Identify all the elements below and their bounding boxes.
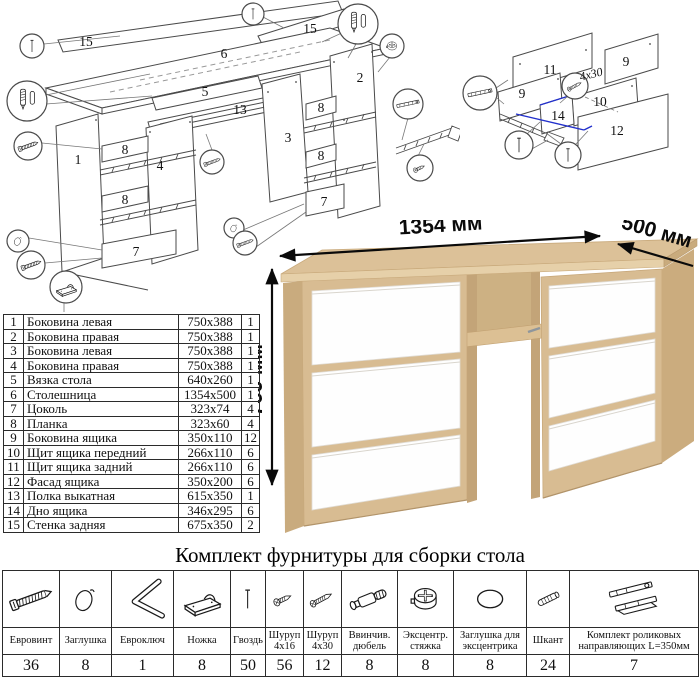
part-qty: 6 — [242, 460, 260, 475]
callout — [20, 34, 44, 58]
right-pedestal — [541, 249, 694, 498]
part-label-7: 7 — [321, 194, 328, 209]
parts-table-row: 8 Планка 323x60 4 — [4, 416, 260, 431]
callout — [555, 142, 581, 168]
drawer-assembly-diagram: 11 9 9 10 14 12 4x30 — [455, 15, 700, 210]
hardware-item-icon-cell — [342, 571, 397, 628]
hardware-item-icon-cell — [527, 571, 569, 628]
part-size: 346x295 — [179, 503, 242, 518]
hardware-item-label: Гвоздь — [231, 628, 265, 655]
part-qty: 12 — [242, 431, 260, 446]
hardware-item: Заглушка для эксцентрика 8 — [454, 571, 527, 676]
part-label-1: 1 — [75, 152, 82, 167]
part-size: 640x260 — [179, 373, 242, 388]
hardware-item-qty: 8 — [342, 655, 397, 676]
callout — [50, 271, 82, 303]
part-number: 13 — [4, 489, 24, 504]
part-size: 266x110 — [179, 445, 242, 460]
hardware-item-qty: 8 — [454, 655, 526, 676]
hardware-item-label: Ввинчив. дюбель — [342, 628, 397, 655]
part-qty: 1 — [242, 315, 260, 330]
part-name: Боковина ящика — [24, 431, 179, 446]
hardware-item-icon-cell — [454, 571, 526, 628]
part-qty: 4 — [242, 416, 260, 431]
cam-cover-icon — [457, 574, 523, 624]
hardware-item-qty: 24 — [527, 655, 569, 676]
parts-table-row: 1 Боковина левая 750x388 1 — [4, 315, 260, 330]
parts-table-row: 5 Вязка стола 640x260 1 — [4, 373, 260, 388]
hardware-item: Эксцентр. стяжка 8 — [398, 571, 454, 676]
part-qty: 1 — [242, 329, 260, 344]
callout — [200, 150, 224, 174]
hardware-item-label: Шуруп 4x16 — [266, 628, 303, 655]
hardware-item-qty: 7 — [570, 655, 698, 676]
callout — [233, 231, 257, 255]
part-label-9: 9 — [519, 86, 526, 101]
part-size: 750x388 — [179, 358, 242, 373]
hardware-item-label: Заглушка для эксцентрика — [454, 628, 526, 655]
hardware-item-icon-cell — [174, 571, 230, 628]
part-size: 323x60 — [179, 416, 242, 431]
part-name: Боковина правая — [24, 329, 179, 344]
hardware-item-icon-cell — [398, 571, 453, 628]
part-number: 14 — [4, 503, 24, 518]
hardware-item-label: Евроключ — [112, 628, 173, 655]
callout — [17, 251, 45, 279]
hardware-item-icon-cell — [60, 571, 111, 628]
parts-table-row: 11 Щит ящика задний 266x110 6 — [4, 460, 260, 475]
part-qty: 2 — [242, 518, 260, 533]
part-number: 7 — [4, 402, 24, 417]
part-label-7: 7 — [133, 244, 140, 259]
part-label-8: 8 — [122, 142, 129, 157]
hardware-item-label: Шкант — [527, 628, 569, 655]
hardware-item-label: Ножка — [174, 628, 230, 655]
wood-dowel-icon — [529, 574, 568, 624]
hardware-item: Гвоздь 50 — [231, 571, 266, 676]
part-qty: 1 — [242, 387, 260, 402]
cam-lock-icon — [400, 574, 451, 624]
part-name: Дно ящика — [24, 503, 179, 518]
part-number: 2 — [4, 329, 24, 344]
parts-table-row: 9 Боковина ящика 350x110 12 — [4, 431, 260, 446]
hardware-item: Ввинчив. дюбель 8 — [342, 571, 398, 676]
part-name: Стенка задняя — [24, 518, 179, 533]
hardware-item-qty: 56 — [266, 655, 303, 676]
part-qty: 6 — [242, 503, 260, 518]
part-size: 266x110 — [179, 460, 242, 475]
drawer-front — [312, 282, 460, 365]
desk-render: 1354 мм 500 мм 766 мм — [258, 220, 700, 555]
desk-middle-section — [464, 272, 542, 503]
hardware-item-qty: 8 — [398, 655, 453, 676]
part-number: 1 — [4, 315, 24, 330]
callout — [242, 3, 264, 25]
hardware-item-icon-cell — [112, 571, 173, 628]
part-size: 750x388 — [179, 344, 242, 359]
hardware-item-icon-cell — [3, 571, 59, 628]
hex-key-icon — [114, 574, 170, 624]
part-size: 675x350 — [179, 518, 242, 533]
hardware-item: Ножка 8 — [174, 571, 231, 676]
hardware-kit-title: Комплект фурнитуры для сборки стола — [0, 543, 700, 568]
part-number: 6 — [4, 387, 24, 402]
hardware-item: Шкант 24 — [527, 571, 570, 676]
part-qty: 1 — [242, 344, 260, 359]
part-qty: 4 — [242, 402, 260, 417]
foot-icon — [176, 574, 228, 624]
part-number: 5 — [4, 373, 24, 388]
screw-dowel-icon — [344, 574, 395, 624]
hardware-item-qty: 1 — [112, 655, 173, 676]
part-label-15: 15 — [79, 34, 93, 49]
callout — [393, 89, 423, 119]
hardware-item-icon-cell — [231, 571, 265, 628]
part-size: 323x74 — [179, 402, 242, 417]
hardware-item: Евроключ 1 — [112, 571, 174, 676]
callout — [14, 132, 42, 160]
part-number: 4 — [4, 358, 24, 373]
hardware-kit-table: Евровинт 36 Заглушка 8 Евроключ 1 — [2, 570, 699, 677]
hardware-item-icon-cell — [304, 571, 341, 628]
part-name: Вязка стола — [24, 373, 179, 388]
part-number: 8 — [4, 416, 24, 431]
part-size: 750x388 — [179, 329, 242, 344]
part-size: 750x388 — [179, 315, 242, 330]
parts-table-row: 6 Столешница 1354x500 1 — [4, 387, 260, 402]
callout — [505, 131, 533, 159]
part-label-3: 3 — [285, 130, 292, 145]
callout — [7, 81, 47, 121]
part-name: Щит ящика передний — [24, 445, 179, 460]
part-name: Щит ящика задний — [24, 460, 179, 475]
nail-icon — [232, 574, 263, 624]
part-qty: 6 — [242, 445, 260, 460]
hardware-item-label: Евровинт — [3, 628, 59, 655]
hardware-item-label: Шуруп 4x30 — [304, 628, 341, 655]
callout — [463, 76, 497, 110]
part-label-12: 12 — [610, 123, 624, 138]
hardware-item-qty: 8 — [174, 655, 230, 676]
hardware-item: Шуруп 4x30 12 — [304, 571, 342, 676]
part-label-4: 4 — [157, 158, 164, 173]
part-name: Боковина правая — [24, 358, 179, 373]
part-label-6: 6 — [221, 46, 228, 61]
hardware-item-icon-cell — [570, 571, 698, 628]
screw-long-icon — [305, 574, 339, 624]
plug-icon — [62, 574, 109, 624]
part-qty: 1 — [242, 358, 260, 373]
hardware-item: Комплект роликовых направляющих L=350мм … — [570, 571, 698, 676]
hardware-item-label: Заглушка — [60, 628, 111, 655]
part-name: Полка выкатная — [24, 489, 179, 504]
hardware-item: Евровинт 36 — [3, 571, 60, 676]
parts-table-row: 14 Дно ящика 346x295 6 — [4, 503, 260, 518]
part-size: 615x350 — [179, 489, 242, 504]
assembly-instruction-sheet: 15 15 6 5 13 3 2 1 4 8 8 8 8 7 7 — [0, 0, 700, 677]
euroscrew-icon — [5, 574, 57, 624]
hardware-item-label: Эксцентр. стяжка — [398, 628, 453, 655]
callout — [338, 4, 378, 44]
part-qty: 1 — [242, 373, 260, 388]
parts-table-row: 7 Цоколь 323x74 4 — [4, 402, 260, 417]
hardware-item: Шуруп 4x16 56 — [266, 571, 304, 676]
parts-table-row: 2 Боковина правая 750x388 1 — [4, 329, 260, 344]
part-label-9: 9 — [623, 54, 630, 69]
hardware-item: Заглушка 8 — [60, 571, 112, 676]
parts-table-row: 4 Боковина правая 750x388 1 — [4, 358, 260, 373]
parts-table-row: 10 Щит ящика передний 266x110 6 — [4, 445, 260, 460]
part-number: 9 — [4, 431, 24, 446]
part-label-8: 8 — [122, 192, 129, 207]
part-label-15: 15 — [303, 21, 317, 36]
parts-table-row: 12 Фасад ящика 350x200 6 — [4, 474, 260, 489]
part-qty: 1 — [242, 489, 260, 504]
part-qty: 6 — [242, 474, 260, 489]
part-label-8: 8 — [318, 100, 325, 115]
parts-table-body: 1 Боковина левая 750x388 1 2 Боковина пр… — [4, 315, 260, 533]
part-name: Цоколь — [24, 402, 179, 417]
parts-table-row: 13 Полка выкатная 615x350 1 — [4, 489, 260, 504]
screw-short-icon — [267, 574, 301, 624]
part-number: 3 — [4, 344, 24, 359]
part-number: 15 — [4, 518, 24, 533]
part-label-11: 11 — [544, 62, 557, 77]
hardware-item-qty: 8 — [60, 655, 111, 676]
slide-rail-icon — [575, 574, 693, 624]
drawer-side-panel — [605, 34, 658, 84]
left-pedestal — [283, 272, 467, 533]
callout — [7, 230, 29, 252]
width-dimension-label: 1354 мм — [398, 220, 483, 240]
callout — [407, 155, 433, 181]
hardware-item-qty: 50 — [231, 655, 265, 676]
part-number: 12 — [4, 474, 24, 489]
parts-table-row: 3 Боковина левая 750x388 1 — [4, 344, 260, 359]
part-name: Боковина левая — [24, 344, 179, 359]
part-size: 350x110 — [179, 431, 242, 446]
part-name: Боковина левая — [24, 315, 179, 330]
part-name: Столешница — [24, 387, 179, 402]
part-size: 1354x500 — [179, 387, 242, 402]
part-size: 350x200 — [179, 474, 242, 489]
parts-table-row: 15 Стенка задняя 675x350 2 — [4, 518, 260, 533]
part-label-8: 8 — [318, 148, 325, 163]
part-name: Планка — [24, 416, 179, 431]
parts-table: 1 Боковина левая 750x388 1 2 Боковина пр… — [3, 314, 260, 533]
part-name: Фасад ящика — [24, 474, 179, 489]
part-label-2: 2 — [357, 70, 364, 85]
hardware-item-qty: 36 — [3, 655, 59, 676]
hardware-item-icon-cell — [266, 571, 303, 628]
part-label-13: 13 — [233, 102, 247, 117]
part-number: 11 — [4, 460, 24, 475]
part-label-14: 14 — [551, 108, 565, 123]
hardware-item-qty: 12 — [304, 655, 341, 676]
part-label-5: 5 — [202, 84, 209, 99]
hardware-item-label: Комплект роликовых направляющих L=350мм — [570, 628, 698, 655]
part-number: 10 — [4, 445, 24, 460]
side-panel-1 — [56, 114, 104, 272]
part-label-10: 10 — [593, 94, 607, 109]
callout — [380, 34, 404, 58]
